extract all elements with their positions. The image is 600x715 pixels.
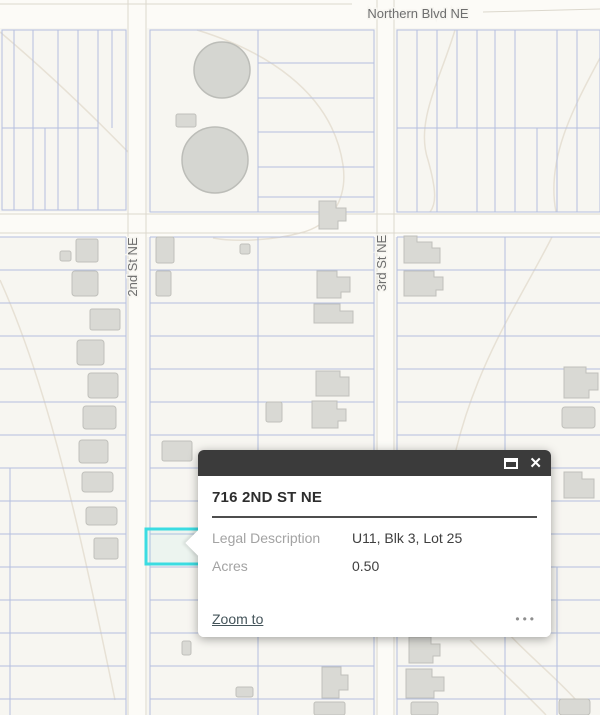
table-row: Acres 0.50 <box>212 557 537 576</box>
field-label: Legal Description <box>212 529 352 548</box>
street-label-2nd-st: 2nd St NE <box>125 237 140 297</box>
street-label-3rd-st: 3rd St NE <box>374 234 389 291</box>
field-value: 0.50 <box>352 557 379 576</box>
street-label-northern-blvd: Northern Blvd NE <box>367 6 468 21</box>
popup-title: 716 2ND ST NE <box>212 489 537 506</box>
zoom-to-link[interactable]: Zoom to <box>212 611 263 627</box>
popup-divider <box>212 516 537 518</box>
attribute-table: Legal Description U11, Blk 3, Lot 25 Acr… <box>212 529 537 576</box>
close-icon[interactable]: ✕ <box>529 456 542 471</box>
table-row: Legal Description U11, Blk 3, Lot 25 <box>212 529 537 548</box>
field-value: U11, Blk 3, Lot 25 <box>352 529 462 548</box>
popup-header: ✕ <box>198 450 551 476</box>
map-application: Northern Blvd NE 2nd St NE 3rd St NE ✕ 7… <box>0 0 600 715</box>
maximize-icon[interactable] <box>504 458 518 469</box>
more-options-button[interactable]: ••• <box>515 612 537 626</box>
storage-tank <box>194 42 250 98</box>
feature-popup: ✕ 716 2ND ST NE Legal Description U11, B… <box>198 450 551 637</box>
popup-footer: Zoom to ••• <box>212 611 537 627</box>
storage-tank <box>182 127 248 193</box>
field-label: Acres <box>212 557 352 576</box>
popup-body: 716 2ND ST NE Legal Description U11, Blk… <box>198 476 551 637</box>
